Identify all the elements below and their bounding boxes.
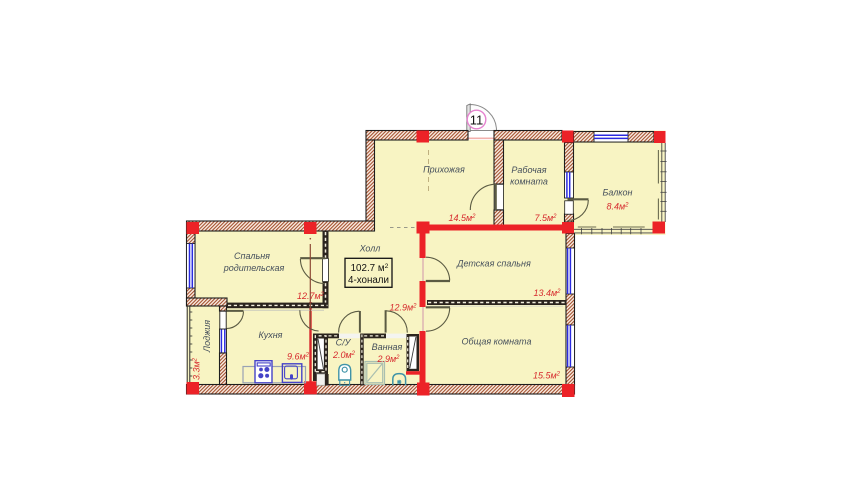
svg-text:Прихожая: Прихожая bbox=[423, 165, 465, 175]
svg-text:11: 11 bbox=[470, 112, 484, 127]
svg-text:С/У: С/У bbox=[336, 338, 352, 348]
svg-text:102.7 м2: 102.7 м2 bbox=[351, 263, 389, 274]
svg-text:Общая комната: Общая комната bbox=[462, 337, 532, 347]
svg-text:4-хонали: 4-хонали bbox=[348, 275, 389, 286]
svg-text:14.5м2: 14.5м2 bbox=[448, 213, 476, 223]
svg-text:Холл: Холл bbox=[359, 244, 381, 254]
svg-text:Детская спальня: Детская спальня bbox=[456, 259, 531, 269]
svg-text:комната: комната bbox=[510, 177, 548, 187]
svg-text:12.9м2: 12.9м2 bbox=[389, 303, 417, 313]
svg-text:12.7м2: 12.7м2 bbox=[297, 291, 325, 301]
svg-text:Кухня: Кухня bbox=[259, 330, 283, 340]
svg-text:Спальня: Спальня bbox=[234, 251, 270, 261]
svg-text:Лоджия: Лоджия bbox=[202, 320, 212, 353]
svg-text:родительская: родительская bbox=[223, 263, 285, 273]
svg-text:Балкон: Балкон bbox=[602, 188, 632, 198]
svg-text:13.4м2: 13.4м2 bbox=[533, 288, 561, 298]
svg-text:Рабочая: Рабочая bbox=[511, 165, 546, 175]
svg-text:Ванная: Ванная bbox=[372, 342, 403, 352]
svg-text:15.5м2: 15.5м2 bbox=[533, 371, 561, 381]
